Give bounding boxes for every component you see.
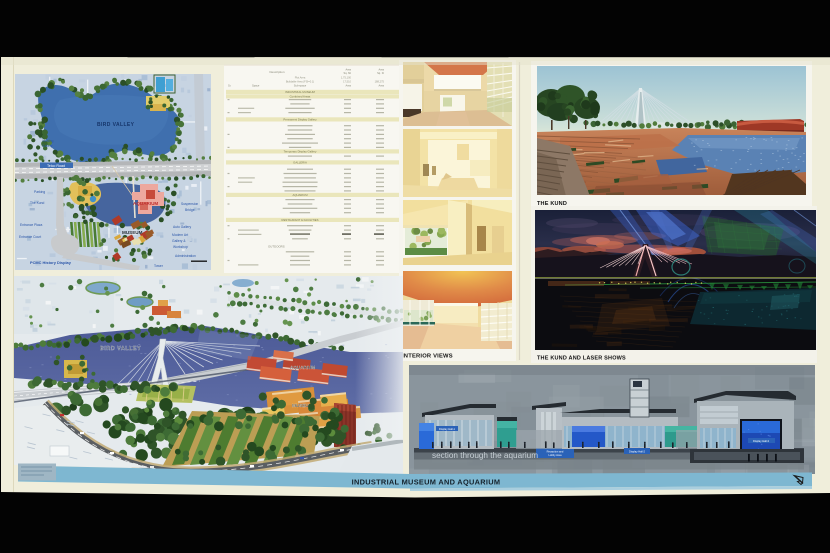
- svg-text:Entrance Court: Entrance Court: [19, 235, 41, 239]
- svg-text:Gallery: Gallery: [42, 144, 53, 148]
- svg-text:The Kund: The Kund: [30, 201, 44, 205]
- svg-text:MUSEUM: MUSEUM: [122, 230, 143, 235]
- svg-text:Buildable Area (FSI=0.1): Buildable Area (FSI=0.1): [286, 80, 314, 84]
- svg-text:AQUARIUM: AQUARIUM: [290, 365, 315, 370]
- svg-text:AQUARIUM: AQUARIUM: [133, 201, 158, 206]
- svg-text:Temporary Display Gallery: Temporary Display Gallery: [284, 150, 317, 154]
- svg-text:Gallery &: Gallery &: [172, 239, 186, 243]
- svg-text:Permanent Display Gallery: Permanent Display Gallery: [283, 118, 317, 122]
- svg-text:PCMC History Display: PCMC History Display: [30, 260, 72, 265]
- svg-text:Suspension: Suspension: [181, 202, 198, 206]
- svg-text:section through the aquarium: section through the aquarium: [432, 451, 538, 460]
- svg-text:Parking: Parking: [34, 190, 45, 194]
- svg-text:Space: Space: [252, 84, 260, 88]
- svg-text:Combined Areas: Combined Areas: [290, 95, 311, 99]
- svg-text:17,510: 17,510: [343, 80, 351, 84]
- svg-text:Sq. Mt: Sq. Mt: [344, 71, 352, 75]
- svg-text:Administration: Administration: [175, 254, 196, 258]
- svg-text:INDUSTRIAL MUSEUM: INDUSTRIAL MUSEUM: [285, 90, 315, 94]
- svg-text:BIRD VALLEY: BIRD VALLEY: [97, 122, 135, 128]
- svg-text:INTERIOR VIEWS: INTERIOR VIEWS: [402, 354, 453, 360]
- svg-text:Modern Art: Modern Art: [172, 233, 188, 237]
- svg-text:Bridge: Bridge: [185, 208, 195, 212]
- svg-text:GALLERIA: GALLERIA: [293, 161, 307, 165]
- svg-text:AQUARIUM: AQUARIUM: [292, 193, 308, 197]
- svg-text:BIRD VALLEY: BIRD VALLEY: [100, 346, 141, 352]
- svg-text:Reception and: Reception and: [547, 450, 564, 454]
- svg-text:Area: Area: [379, 84, 385, 88]
- svg-text:188,275: 188,275: [375, 80, 385, 84]
- svg-text:Telco Road: Telco Road: [47, 164, 65, 168]
- svg-text:OUTDOORS: OUTDOORS: [268, 245, 285, 249]
- svg-text:Display Hall-3: Display Hall-3: [753, 439, 770, 443]
- svg-text:Sq. Ft: Sq. Ft: [377, 71, 384, 75]
- svg-text:Display Hall-1: Display Hall-1: [439, 427, 456, 431]
- svg-text:INDUSTRIAL MUSEUM AND AQUARIUM: INDUSTRIAL MUSEUM AND AQUARIUM: [352, 478, 501, 487]
- svg-text:Tower: Tower: [154, 264, 164, 268]
- svg-text:RESTAURANT & FACILITIES: RESTAURANT & FACILITIES: [282, 218, 319, 222]
- svg-text:Sr.: Sr.: [228, 84, 231, 88]
- svg-text:1,75,100: 1,75,100: [341, 76, 352, 80]
- svg-text:Plot Area: Plot Area: [295, 76, 306, 80]
- svg-text:Lobby Area: Lobby Area: [548, 453, 562, 457]
- svg-text:Workshop: Workshop: [173, 245, 188, 249]
- svg-text:Sub-space: Sub-space: [294, 84, 307, 88]
- svg-text:Display Hall-2: Display Hall-2: [629, 450, 646, 454]
- svg-text:Area: Area: [346, 84, 352, 88]
- svg-text:Viewing: Viewing: [42, 139, 54, 143]
- svg-text:Auto Gallery: Auto Gallery: [173, 225, 191, 229]
- svg-text:Entrance Plaza: Entrance Plaza: [20, 223, 43, 227]
- svg-text:THE KUND AND LASER SHOWS: THE KUND AND LASER SHOWS: [537, 356, 626, 362]
- svg-text:Description: Description: [269, 70, 284, 74]
